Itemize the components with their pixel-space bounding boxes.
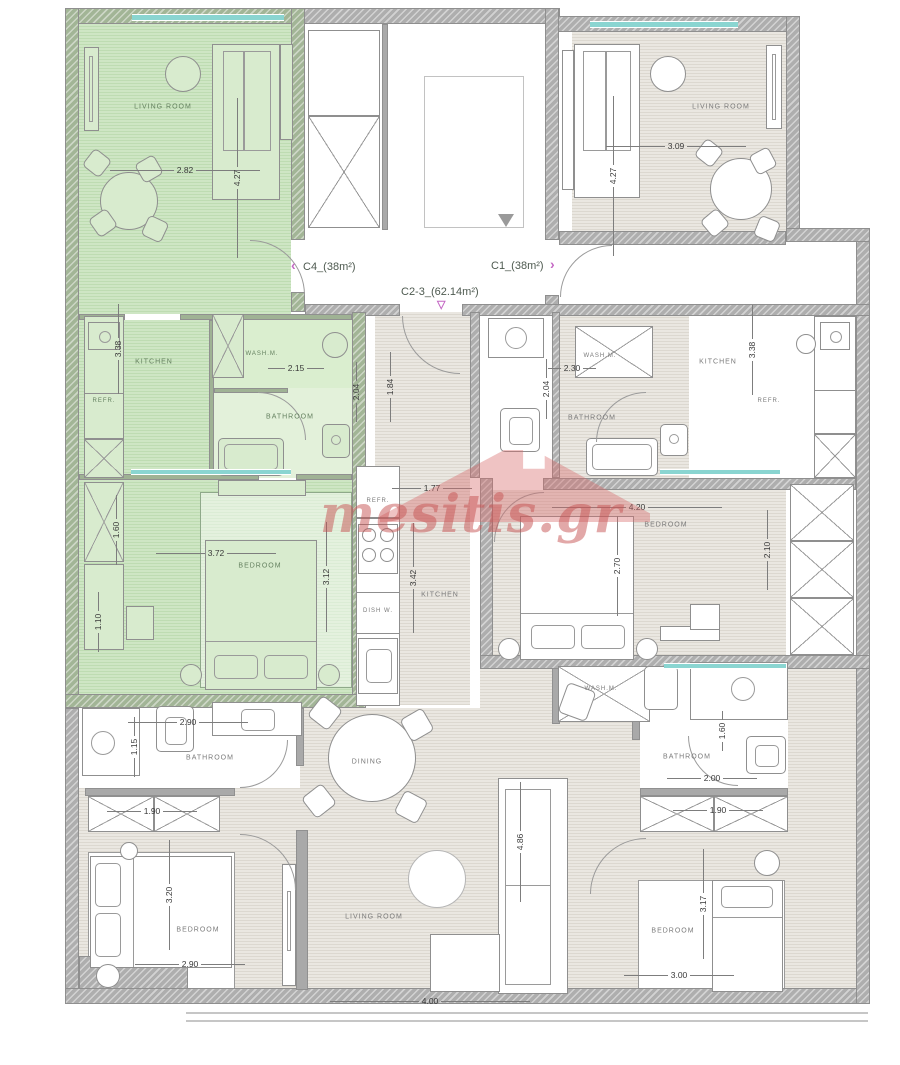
dim-c23-entry-height: 1.84 <box>385 352 395 422</box>
room-label-living-room: LIVING ROOM <box>692 104 750 111</box>
stair-direction-arrow <box>498 214 514 227</box>
wall-c4-core-lower <box>291 292 305 312</box>
room-label-bathroom: BATHROOM <box>663 754 711 761</box>
dim-c23-bath-mid-height: 2.04 <box>541 359 551 419</box>
kitchen-sink <box>358 638 398 694</box>
kitchen-cabinet <box>84 439 124 478</box>
arrow-left-icon: ‹ <box>291 258 296 272</box>
room-label-washing-machine: WASH.M. <box>584 686 617 692</box>
room-label-washing-machine: WASH.M. <box>583 353 616 359</box>
room-label-living-room: LIVING ROOM <box>134 104 192 111</box>
balcony-line-2 <box>186 1020 868 1022</box>
unit-label-c4: C4_(38m²) <box>303 261 356 273</box>
dim-c23-sofa-height: 4.86 <box>515 782 525 902</box>
stool <box>96 964 120 988</box>
dim-c23-bedl-width: 2.90 <box>135 959 245 969</box>
wall-corridor-right <box>470 312 480 478</box>
washbasin <box>660 424 688 456</box>
rug <box>408 850 466 908</box>
closet <box>790 598 854 655</box>
window-c1-mid <box>660 470 780 474</box>
sofa-back-panel <box>562 50 574 190</box>
partition-bathr-bottom <box>640 788 788 796</box>
refrigerator <box>814 390 856 434</box>
door-arc-c4-entry <box>250 240 305 295</box>
tv-board <box>84 47 99 131</box>
dim-c23-bathr-shower: 1.60 <box>717 711 727 751</box>
closet <box>790 484 854 541</box>
elevator-machine-room <box>308 30 380 116</box>
dim-c23-bathl-width: 2.90 <box>128 717 248 727</box>
arrow-right-icon: › <box>550 257 555 271</box>
dim-c23-bedl-height: 3.20 <box>164 840 174 950</box>
washbasin <box>322 424 350 458</box>
side-table <box>650 56 686 92</box>
closet <box>790 541 854 598</box>
floor-plan-page: { "plan": { "watermark": "mesitis.gr", "… <box>0 0 900 1065</box>
sofa <box>498 778 568 994</box>
dim-c4-closet-b: 1.10 <box>93 592 103 652</box>
dim-c1-closet: 2.10 <box>762 510 772 590</box>
dim-c1-washm-width: 2.30 <box>548 363 596 373</box>
watermark-text: mesitis.gr <box>320 484 622 545</box>
room-label-refrigerator: REFR. <box>758 398 781 404</box>
nightstand <box>754 850 780 876</box>
dim-c23-living-width: 4.00 <box>330 996 530 1006</box>
wall-c4-left <box>65 8 79 708</box>
sofa <box>212 44 280 200</box>
window-c4-living <box>132 15 284 20</box>
shower <box>690 662 788 720</box>
kitchen-sink <box>820 322 850 350</box>
room-label-living-room: LIVING ROOM <box>345 914 403 921</box>
wall-core-right-upper <box>545 8 559 240</box>
nightstand <box>636 638 658 660</box>
wall-core-top <box>300 8 560 24</box>
nightstand <box>498 638 520 660</box>
storage-box <box>690 604 720 630</box>
room-label-refrigerator: REFR. <box>93 398 116 404</box>
arrow-down-icon: ▽ <box>437 300 445 311</box>
toilet <box>644 666 678 710</box>
coffee-table <box>430 934 500 992</box>
wall-left-lower <box>65 708 79 1004</box>
toilet <box>500 408 540 452</box>
dim-c23-bedr-height: 3.17 <box>698 849 708 959</box>
dresser <box>126 606 154 640</box>
partition-c4-wash-bath <box>214 388 288 393</box>
room-label-dining: DINING <box>352 759 383 766</box>
bathtub <box>586 438 658 476</box>
sofa-armrest <box>280 44 293 140</box>
dim-c1-living-height: 4.27 <box>608 96 618 256</box>
stool <box>120 842 138 860</box>
balcony-line-1 <box>186 1012 868 1014</box>
room-label-bathroom: BATHROOM <box>568 415 616 422</box>
dim-c4-living-height: 4.27 <box>232 98 242 258</box>
staircase <box>424 76 524 228</box>
room-label-bedroom: BEDROOM <box>651 928 694 935</box>
sofa <box>574 44 640 198</box>
window-c1-living <box>590 22 738 27</box>
room-label-kitchen: KITCHEN <box>135 359 173 366</box>
partition-tv-wall <box>296 830 308 990</box>
dim-c4-closet-a: 1.60 <box>111 495 121 565</box>
wall-connector-right <box>786 228 870 242</box>
dim-c4-bath-height: 2.04 <box>351 362 361 422</box>
unit-label-c23: C2-3_(62.14m²) <box>401 286 479 298</box>
room-label-bathroom: BATHROOM <box>266 414 314 421</box>
stove-burner <box>380 548 394 562</box>
nightstand <box>318 664 340 686</box>
partition-c4-living-kitchen-b <box>180 314 352 320</box>
wall-hall-bottom-b <box>462 304 870 316</box>
dim-c23-bedr-width: 3.00 <box>624 970 734 980</box>
room-label-dishwasher: DISH W. <box>363 608 393 614</box>
dim-c23-bathl-shower: 1.15 <box>129 717 139 777</box>
dim-c1-kitchen-height: 3.38 <box>747 305 757 395</box>
wall-right <box>856 228 870 1004</box>
floor-plan: LIVING ROOM KITCHEN REFR. WASH.M. BATHRO… <box>0 0 900 1065</box>
dim-c1-living-width: 3.09 <box>606 141 746 151</box>
wall-c4-core-upper <box>291 8 305 240</box>
shelf <box>84 564 124 650</box>
kitchen-cabinet <box>814 434 856 478</box>
partition-core-divider <box>382 24 388 230</box>
room-label-bedroom: BEDROOM <box>176 927 219 934</box>
dim-c23-closetl-width: 1.90 <box>107 806 197 816</box>
shower-basin <box>322 332 348 358</box>
desk <box>218 480 306 496</box>
dim-c4-washm-width: 2.15 <box>268 363 324 373</box>
room-label-kitchen: KITCHEN <box>699 359 737 366</box>
window-c4-mid <box>131 470 291 474</box>
wall-bath-mid-right <box>552 312 560 478</box>
dim-c4-kitchen-height: 3.38 <box>113 304 123 394</box>
dim-c4-bed-width: 3.72 <box>156 548 276 558</box>
side-table <box>165 56 201 92</box>
nightstand <box>180 664 202 686</box>
tv-board <box>766 45 782 129</box>
vanity <box>488 318 544 358</box>
room-label-washing-machine: WASH.M. <box>245 351 278 357</box>
room-label-bedroom: BEDROOM <box>238 563 281 570</box>
unit-label-c1: C1_(38m²) <box>491 260 544 272</box>
dim-c23-closetr-width: 1.90 <box>673 805 763 815</box>
window-c1-bedroom <box>664 664 786 668</box>
elevator-shaft <box>308 116 380 228</box>
washing-machine <box>212 314 244 378</box>
room-label-bathroom: BATHROOM <box>186 755 234 762</box>
room-label-kitchen: KITCHEN <box>421 592 459 599</box>
dim-c23-bathr-width: 2.00 <box>667 773 757 783</box>
toilet <box>156 706 194 752</box>
shower-basin <box>796 334 816 354</box>
stove-burner <box>362 548 376 562</box>
washbasin <box>746 736 786 774</box>
bed <box>90 856 232 968</box>
room-label-bedroom: BEDROOM <box>644 522 687 529</box>
wall-hall-living-divider <box>559 231 786 245</box>
partition-bathl-bottom <box>85 788 235 796</box>
wall-c1-right-upper <box>786 16 800 242</box>
